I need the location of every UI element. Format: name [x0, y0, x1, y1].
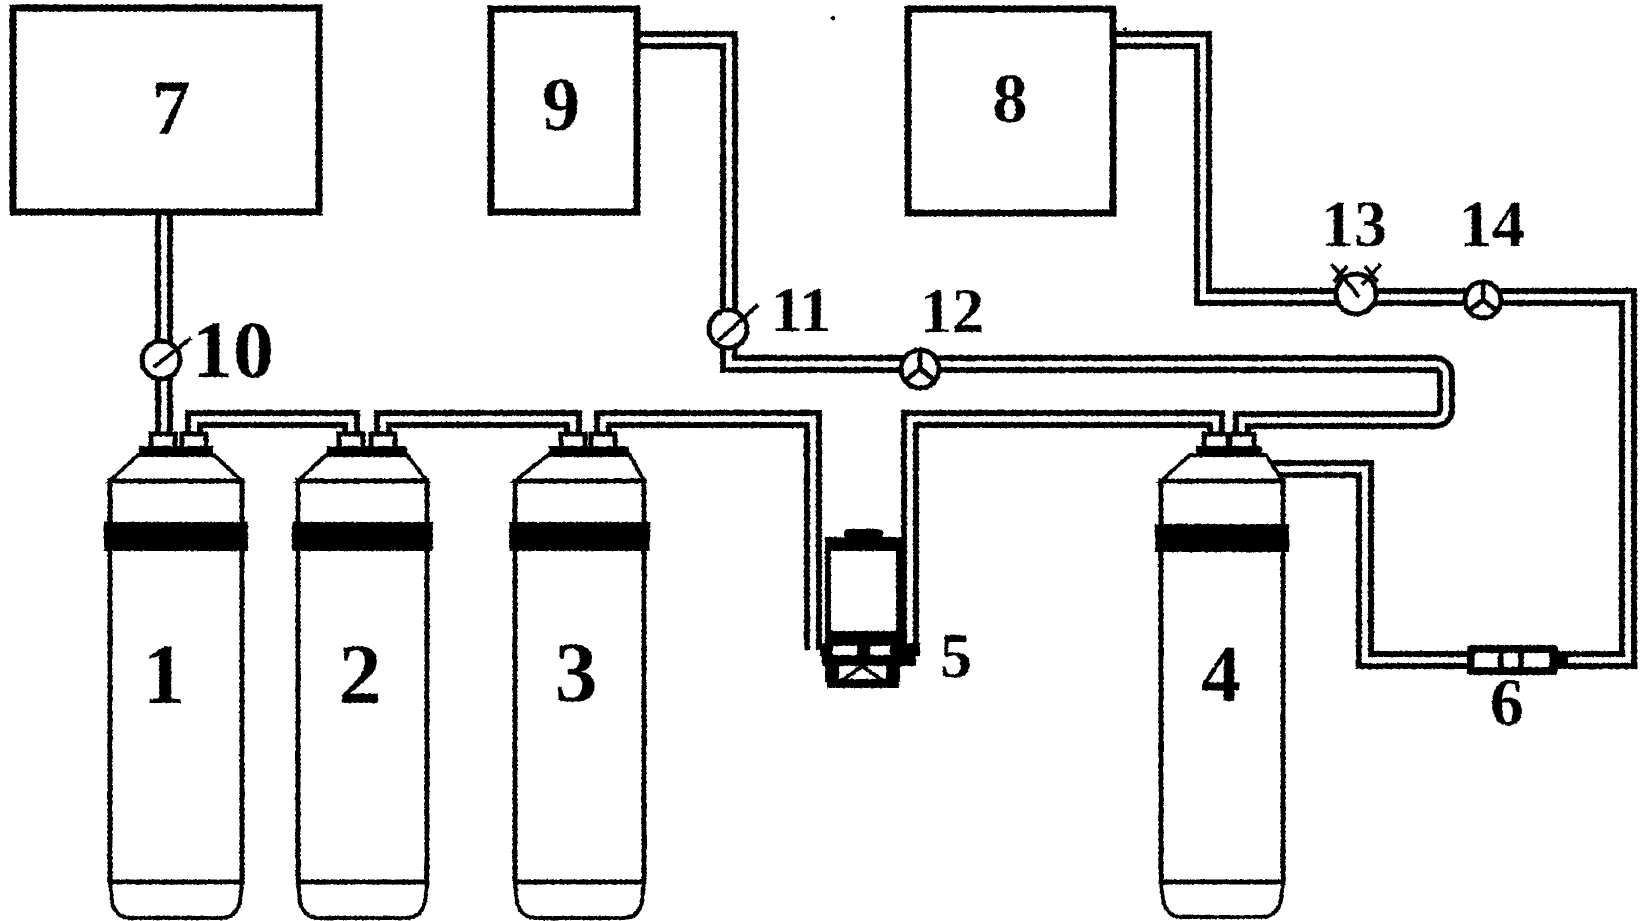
svg-text:14: 14 — [1459, 188, 1525, 261]
svg-text:6: 6 — [1490, 664, 1524, 740]
svg-text:4: 4 — [1201, 631, 1241, 719]
svg-text:5: 5 — [940, 620, 972, 691]
svg-text:8: 8 — [993, 61, 1028, 138]
svg-text:12: 12 — [920, 275, 984, 346]
svg-text:9: 9 — [542, 63, 580, 147]
svg-text:1: 1 — [143, 626, 186, 722]
svg-text:7: 7 — [152, 64, 191, 151]
svg-text:10: 10 — [192, 304, 274, 395]
svg-text:13: 13 — [1321, 188, 1387, 261]
svg-text:2: 2 — [339, 626, 382, 722]
svg-text:11: 11 — [771, 274, 831, 345]
svg-text:3: 3 — [555, 624, 598, 720]
